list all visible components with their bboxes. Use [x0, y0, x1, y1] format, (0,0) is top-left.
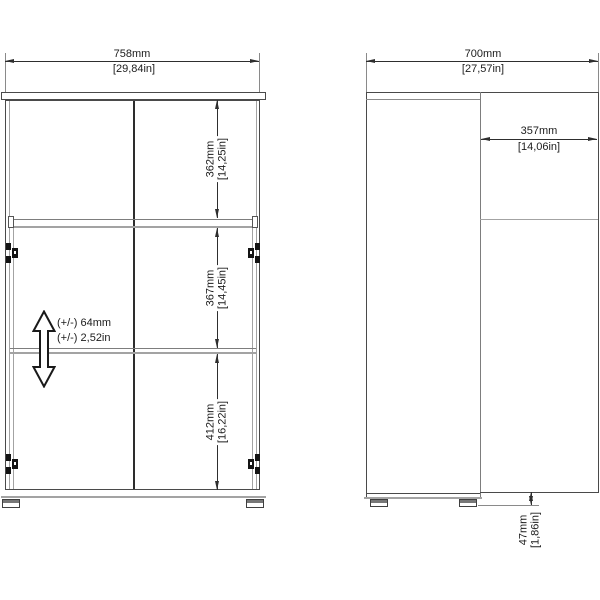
extension-line: [598, 53, 599, 92]
foot-height-inches: [1,86in]: [530, 512, 542, 548]
body-door-boundary-line: [480, 92, 481, 497]
total-depth-mm: 700mm: [465, 48, 502, 60]
dim-arrow-left-icon: [366, 59, 375, 63]
side-right-line: [598, 92, 599, 492]
dim-arrow-right-icon: [589, 59, 598, 63]
dim-arrow-right-icon: [588, 137, 597, 141]
door-shelf-level-line: [480, 219, 598, 220]
body-depth-mm: 357mm: [521, 125, 558, 137]
body-depth-dimension-line: [481, 139, 597, 140]
side-left-line: [366, 92, 367, 497]
side-view: 700mm [27,57in] 357mm [14,06in] 47mm [1,…: [0, 0, 600, 600]
depth-dimension-line: [366, 61, 598, 62]
furniture-dimension-drawing: 758mm [29,84in]: [0, 0, 600, 600]
dim-arrow-left-icon: [481, 137, 490, 141]
foot-height-mm: 47mm: [519, 512, 531, 548]
foot: [370, 499, 388, 507]
side-top-panel-line: [366, 99, 480, 100]
floor-extension-line: [478, 505, 539, 506]
foot-height-label: 47mm [1,86in]: [518, 510, 543, 550]
door-bottom-line: [480, 492, 599, 493]
side-bottom-line: [366, 493, 480, 494]
total-depth-inches: [27,57in]: [462, 63, 504, 75]
dim-arrow-down-icon: [529, 496, 533, 505]
foot: [459, 499, 477, 507]
body-depth-inches: [14,06in]: [518, 141, 560, 153]
side-top-line: [366, 92, 599, 93]
